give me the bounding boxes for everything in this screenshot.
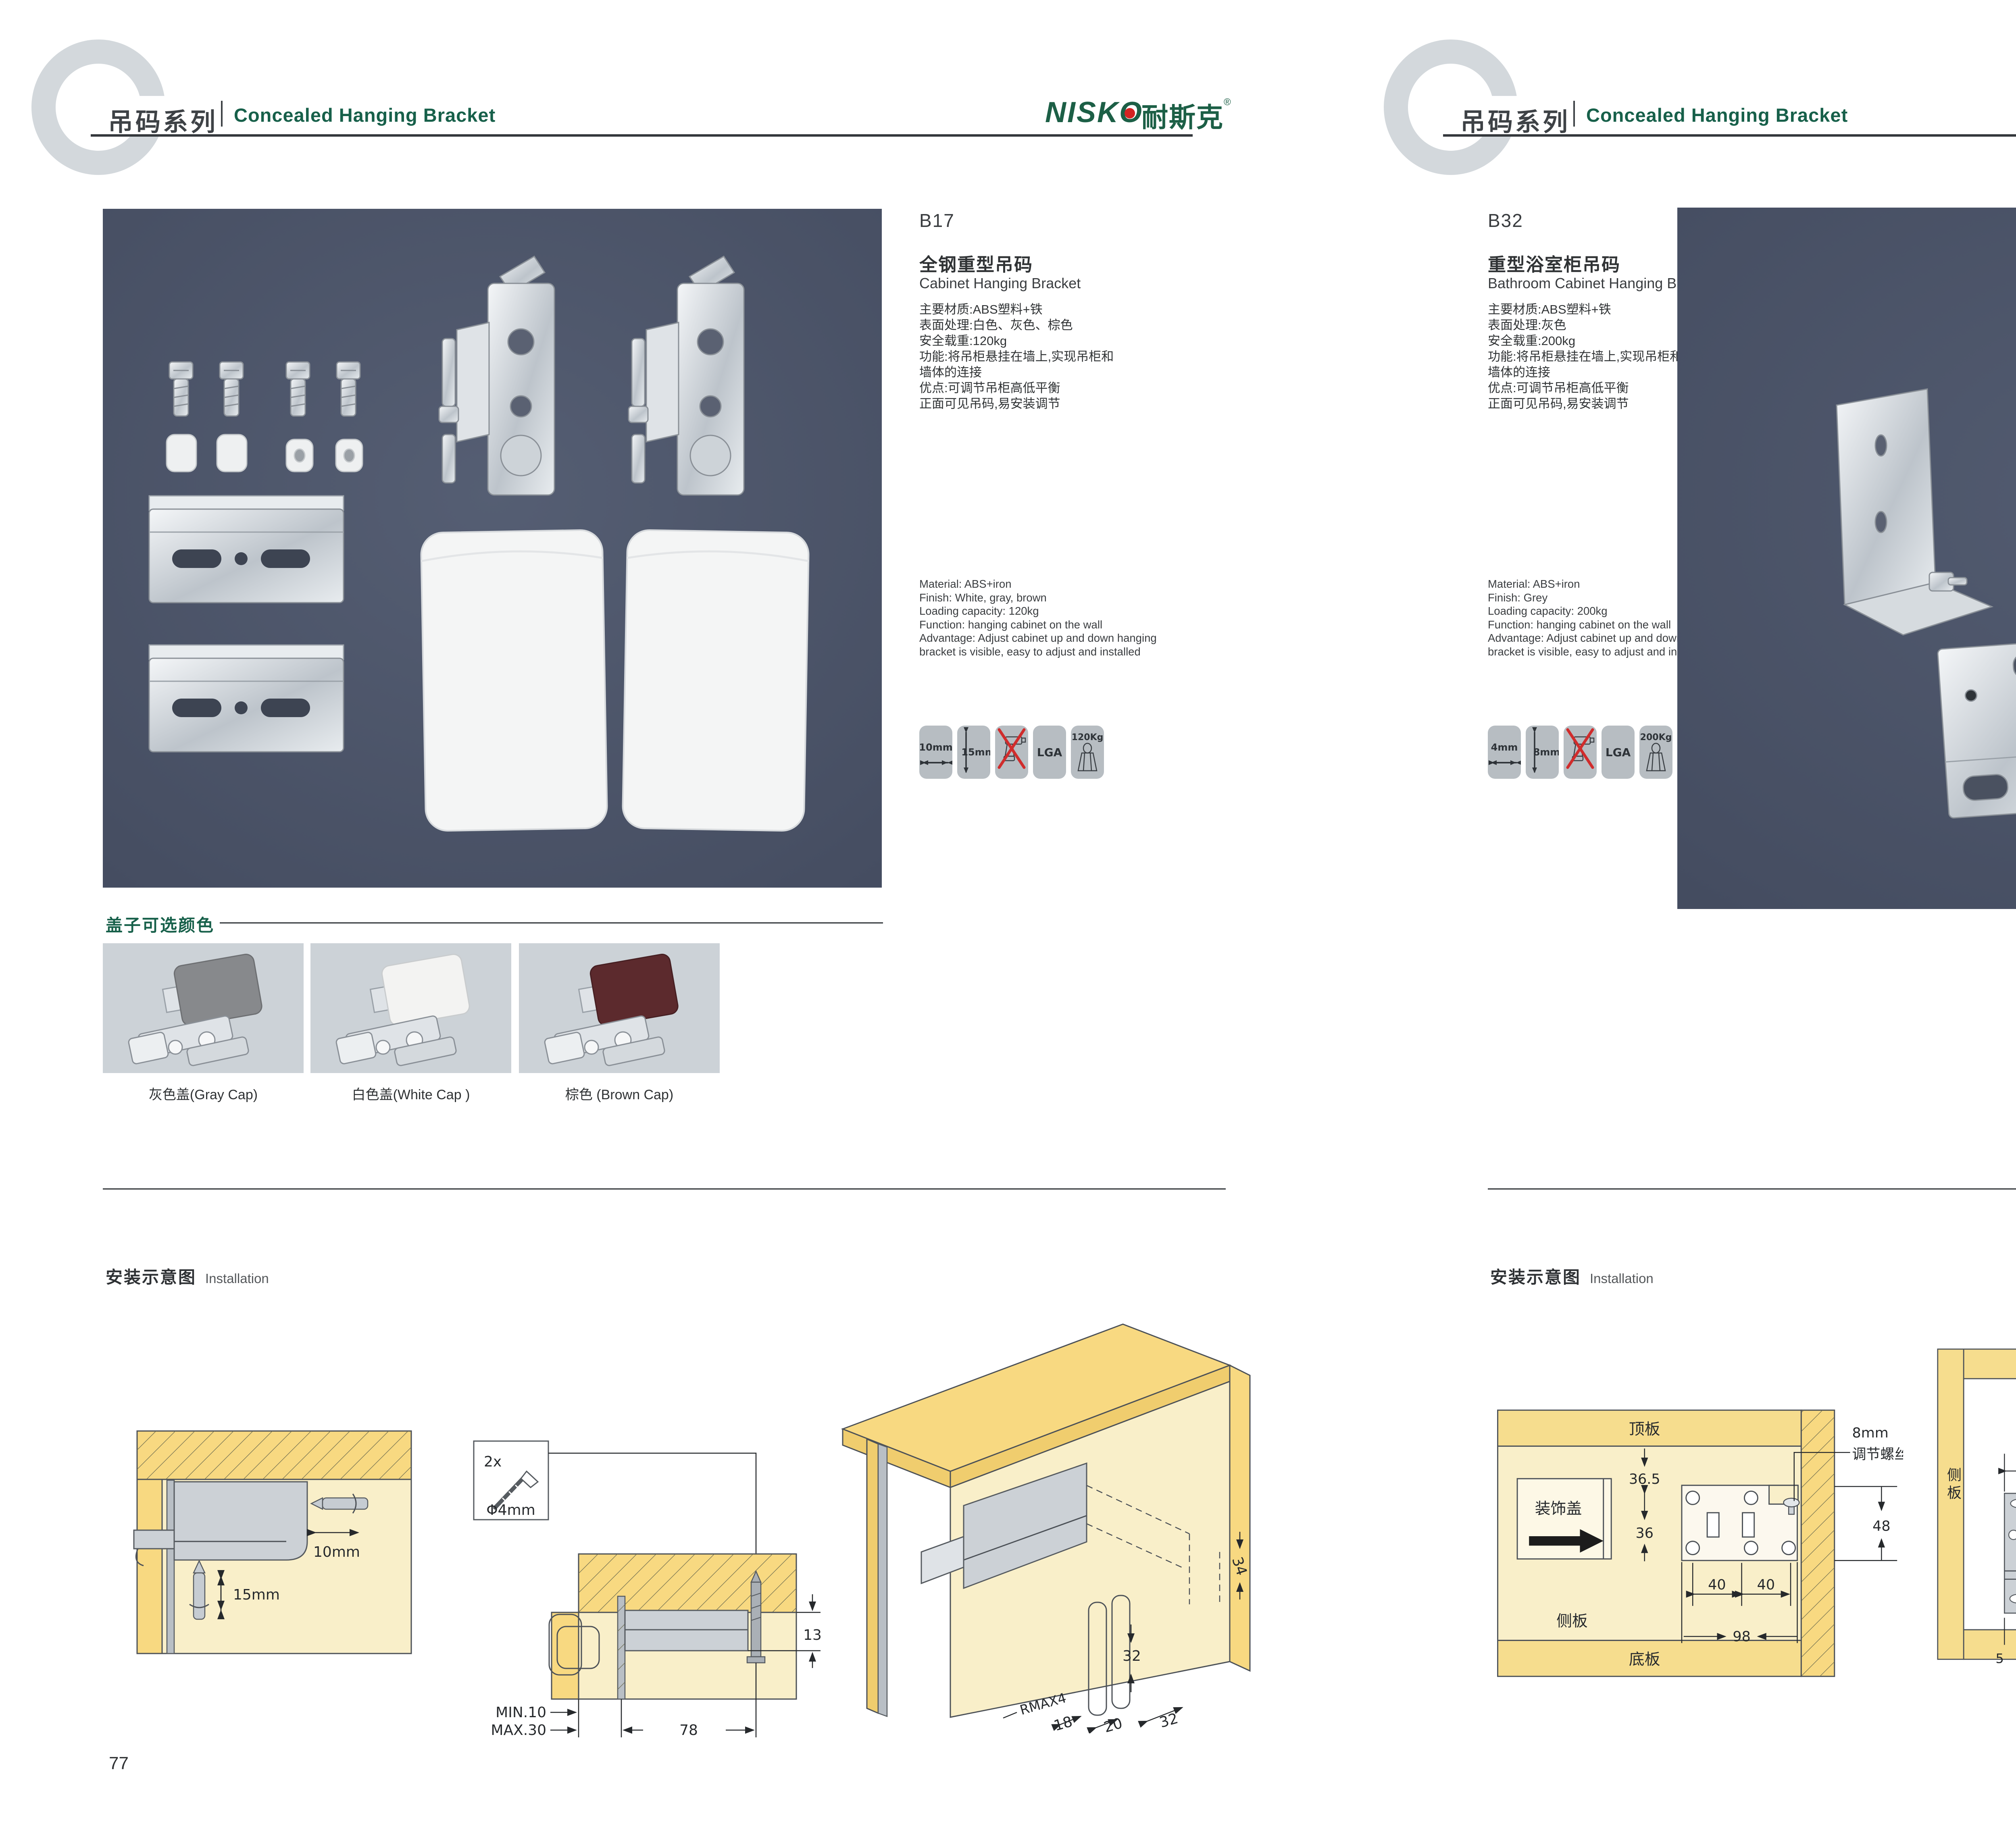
spec-line: 功能:将吊柜悬挂在墙上,实现吊柜和 xyxy=(919,349,1282,364)
brand-logo-dot-icon xyxy=(1125,108,1135,119)
svg-text:8mm: 8mm xyxy=(1533,747,1559,758)
spec-line: Advantage: Adjust cabinet up and down ha… xyxy=(919,631,1282,645)
svg-text:10mm: 10mm xyxy=(919,742,952,753)
header-rule xyxy=(91,134,1193,137)
spec-line: 主要材质:ABS塑料+铁 xyxy=(919,302,1282,317)
installation-heading-zh: 安装示意图 xyxy=(106,1264,196,1288)
svg-text:15mm: 15mm xyxy=(961,747,990,758)
installation-heading-zh: 安装示意图 xyxy=(1490,1264,1581,1288)
svg-text:32: 32 xyxy=(1158,1710,1180,1731)
installation-rule xyxy=(103,1188,1226,1190)
lga-certification-icon: LGA xyxy=(1602,726,1635,779)
product-specs-en: Material: ABS+iron Finish: White, gray, … xyxy=(919,577,1282,658)
series-title-en: Concealed Hanging Bracket xyxy=(234,104,496,126)
series-title-zh: 吊码系列 xyxy=(108,102,218,138)
spec-line: bracket is visible, easy to adjust and i… xyxy=(919,645,1282,659)
svg-text:装饰盖: 装饰盖 xyxy=(1535,1500,1582,1518)
svg-text:36.5: 36.5 xyxy=(1629,1471,1660,1487)
svg-text:10mm: 10mm xyxy=(313,1544,360,1560)
svg-text:200Kg: 200Kg xyxy=(1640,732,1672,743)
svg-text:36: 36 xyxy=(1635,1525,1653,1541)
brand-logo: NISKO 耐斯克 ® xyxy=(1045,96,1231,135)
header-rule xyxy=(1443,134,2016,137)
spec-line: 正面可见吊码,易安装调节 xyxy=(919,396,1282,412)
svg-text:MAX.30: MAX.30 xyxy=(491,1722,546,1739)
spec-line: Function: hanging cabinet on the wall xyxy=(919,618,1282,632)
side-panel-label-left: 侧板 xyxy=(1943,1467,1964,1503)
spec-line: 墙体的连接 xyxy=(919,364,1282,380)
no-drill-icon xyxy=(995,726,1028,779)
svg-text:32: 32 xyxy=(1123,1648,1141,1664)
white-cover-2 xyxy=(623,530,809,831)
svg-text:5: 5 xyxy=(1995,1651,2004,1666)
svg-text:18: 18 xyxy=(1052,1714,1074,1733)
installation-diagram-isometric: 34 32 RMAX4 18 20 32 xyxy=(835,1306,1258,1733)
bracket-plate xyxy=(1682,1485,1799,1560)
svg-text:Φ4mm: Φ4mm xyxy=(486,1502,535,1518)
product-title-zh: 重型浴室柜吊码 xyxy=(1488,250,1620,276)
svg-text:调节螺丝: 调节螺丝 xyxy=(1852,1447,1904,1463)
svg-text:15mm: 15mm xyxy=(233,1587,280,1603)
catalog-spread: { "header": { "series_zh": "吊码系列", "seri… xyxy=(0,0,2016,1847)
svg-text:LGA: LGA xyxy=(1037,746,1062,759)
product-code: B17 xyxy=(919,210,955,231)
svg-text:40: 40 xyxy=(1757,1577,1775,1593)
spec-line: 优点:可调节吊柜高低平衡 xyxy=(919,380,1282,396)
installation-rule xyxy=(1488,1188,2016,1190)
installation-heading-en: Installation xyxy=(1590,1271,1654,1286)
installation-diagram-side-panel: 顶板 底板 装饰盖 36.5 36 8mm 调节螺丝 48 40 40 98 侧… xyxy=(1488,1387,1903,1700)
installation-diagram-front-view: 顶板 底板 48 80 5 5 xyxy=(1923,1338,2016,1681)
product-code: B32 xyxy=(1488,210,1523,231)
drilling-width-icon: 10mm xyxy=(919,726,952,779)
drilling-depth-icon: 8mm xyxy=(1526,726,1559,779)
svg-text:底板: 底板 xyxy=(1629,1651,1660,1669)
wall-plate-1 xyxy=(1937,639,2016,818)
svg-text:48: 48 xyxy=(1872,1518,1890,1534)
cap-label-gray: 灰色盖(Gray Cap) xyxy=(103,1084,304,1103)
brand-logo-cjk: 耐斯克 xyxy=(1141,96,1224,135)
header-divider xyxy=(1573,101,1575,127)
svg-text:120Kg: 120Kg xyxy=(1072,732,1104,743)
header-divider xyxy=(221,101,223,127)
svg-text:2x: 2x xyxy=(484,1454,502,1470)
svg-text:MIN.10: MIN.10 xyxy=(496,1704,546,1721)
svg-text:40: 40 xyxy=(1708,1577,1726,1593)
wall-plate-2 xyxy=(149,645,344,752)
wall-plate-1 xyxy=(149,496,344,603)
left-bracket xyxy=(2004,1493,2016,1613)
brand-logo-registered: ® xyxy=(1224,97,1231,108)
caps-section-heading: 盖子可选颜色 xyxy=(106,912,215,936)
installation-heading-en: Installation xyxy=(205,1271,269,1286)
svg-text:13: 13 xyxy=(803,1627,822,1643)
drilling-width-icon: 4mm xyxy=(1488,726,1521,779)
svg-text:20: 20 xyxy=(1102,1715,1124,1733)
product-title-en: Cabinet Hanging Bracket xyxy=(919,275,1081,292)
caps-section-rule xyxy=(220,922,883,923)
cap-label-white: 白色盖(White Cap ) xyxy=(310,1084,511,1103)
installation-diagram-side-section: 15mm 10mm xyxy=(133,1415,415,1681)
lga-certification-icon: LGA xyxy=(1033,726,1066,779)
cap-photo-white xyxy=(310,943,511,1073)
drilling-depth-icon: 15mm xyxy=(957,726,990,779)
white-cover-1 xyxy=(421,530,608,831)
svg-text:78: 78 xyxy=(679,1722,698,1739)
svg-text:LGA: LGA xyxy=(1606,746,1631,759)
b32-product-photo xyxy=(1677,208,2016,909)
product-title-zh: 全钢重型吊码 xyxy=(919,250,1033,276)
no-drill-icon xyxy=(1564,726,1597,779)
installation-diagram-screw-section: 2x Φ4mm 13 MIN.10 MAX.30 78 xyxy=(444,1379,823,1741)
page-number-left: 77 xyxy=(109,1753,129,1774)
installation-heading: 安装示意图 Installation xyxy=(106,1264,269,1288)
spec-line: 安全载重:120kg xyxy=(919,333,1282,349)
b17-product-photo xyxy=(103,209,882,888)
spec-line: 表面处理:白色、灰色、棕色 xyxy=(919,317,1282,333)
installation-heading: 安装示意图 Installation xyxy=(1490,1264,1654,1288)
svg-text:8mm: 8mm xyxy=(1852,1425,1889,1441)
series-title-en: Concealed Hanging Bracket xyxy=(1586,104,1848,126)
cap-photo-brown xyxy=(519,943,720,1073)
svg-text:顶板: 顶板 xyxy=(1629,1420,1660,1438)
svg-text:侧板: 侧板 xyxy=(1556,1612,1588,1630)
cap-label-brown: 棕色 (Brown Cap) xyxy=(519,1084,720,1103)
load-capacity-icon: 200Kg xyxy=(1639,726,1672,779)
svg-text:98: 98 xyxy=(1733,1629,1750,1645)
load-capacity-icon: 120Kg xyxy=(1071,726,1104,779)
spec-line: Finish: White, gray, brown xyxy=(919,591,1282,605)
spec-line: Loading capacity: 120kg xyxy=(919,604,1282,618)
svg-text:4mm: 4mm xyxy=(1491,742,1518,753)
cap-photo-gray xyxy=(103,943,304,1073)
series-title-zh: 吊码系列 xyxy=(1460,102,1570,138)
product-specs-zh: 主要材质:ABS塑料+铁 表面处理:白色、灰色、棕色 安全载重:120kg 功能… xyxy=(919,302,1282,412)
spec-line: Material: ABS+iron xyxy=(919,577,1282,591)
